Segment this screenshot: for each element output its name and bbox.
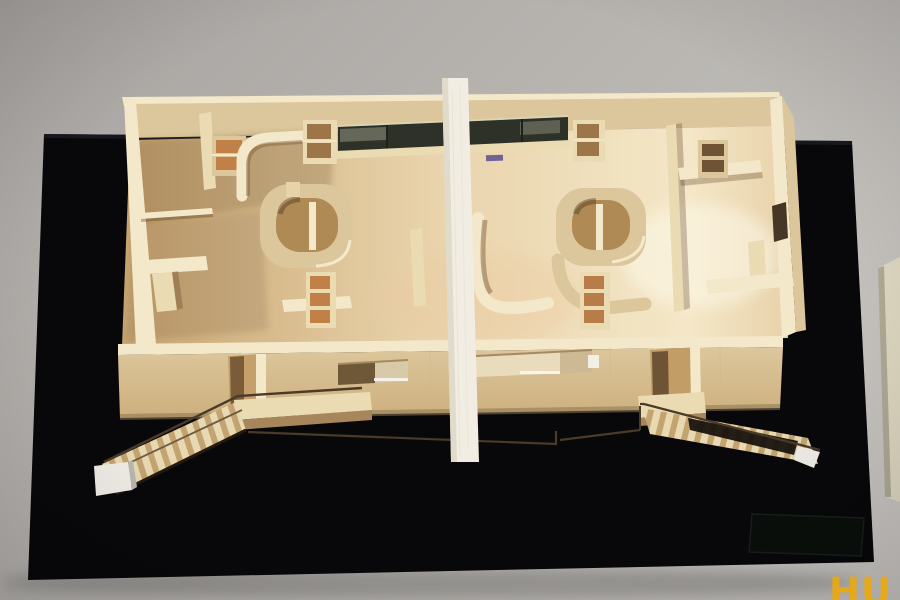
photo-architectural-model: HU: [0, 0, 900, 600]
vignette-overlay: [0, 0, 900, 600]
watermark-logo: HU: [829, 570, 892, 600]
scene-canvas: [0, 0, 900, 600]
